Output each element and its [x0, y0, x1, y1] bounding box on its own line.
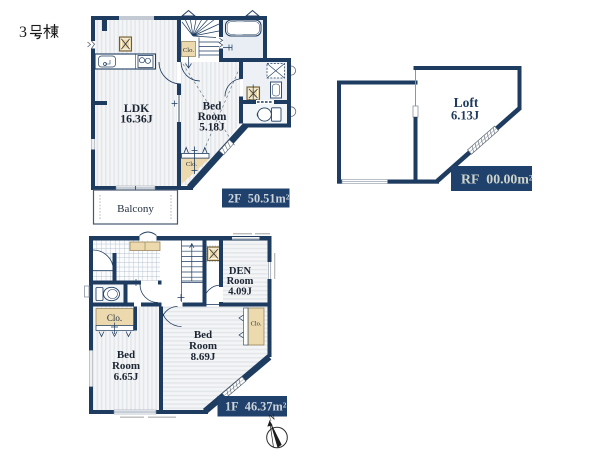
- svg-text:RF 00.00m2: RF 00.00m2: [461, 172, 533, 187]
- svg-text:1F 46.37m2: 1F 46.37m2: [225, 399, 287, 413]
- svg-text:DEN: DEN: [229, 266, 252, 277]
- svg-text:Clo.: Clo.: [183, 47, 195, 54]
- svg-text:2F 50.51m2: 2F 50.51m2: [228, 191, 290, 205]
- svg-text:5.18J: 5.18J: [199, 122, 225, 134]
- svg-text:Clo.: Clo.: [107, 313, 122, 323]
- svg-text:Clo.: Clo.: [186, 161, 198, 168]
- svg-text:Balcony: Balcony: [117, 203, 154, 215]
- svg-text:4.09J: 4.09J: [228, 286, 252, 297]
- svg-text:6.65J: 6.65J: [114, 371, 139, 383]
- svg-text:6.13J: 6.13J: [451, 109, 479, 123]
- svg-text:Clo.: Clo.: [251, 321, 262, 328]
- svg-text:3: 3: [19, 24, 27, 41]
- svg-text:16.36J: 16.36J: [120, 111, 153, 125]
- svg-text:8.69J: 8.69J: [191, 351, 216, 363]
